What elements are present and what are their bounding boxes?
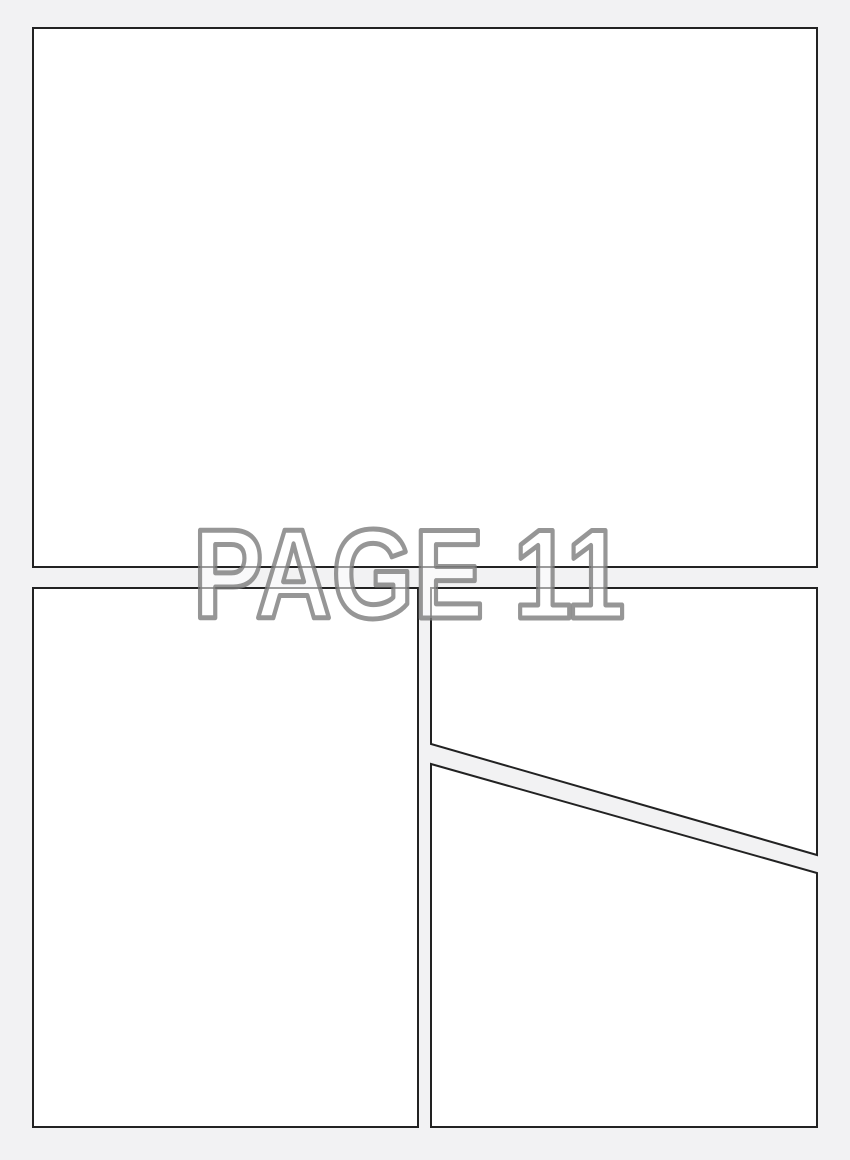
panel-top[interactable] [33, 28, 817, 567]
comic-page-template: PAGE 11 [0, 0, 850, 1160]
page-number-watermark: PAGE 11 [193, 503, 625, 645]
panel-bottom-left[interactable] [33, 588, 418, 1127]
